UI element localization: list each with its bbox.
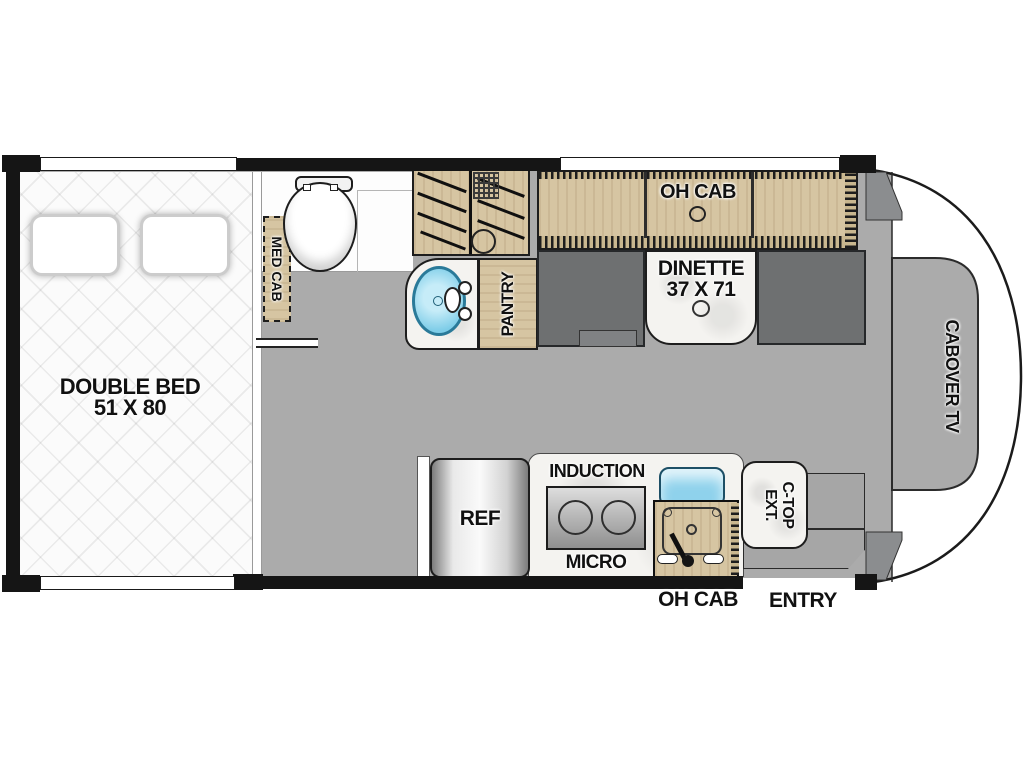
oh-cab-knob	[689, 206, 706, 222]
double-bed-label: DOUBLE BED 51 X 80	[40, 376, 220, 418]
window-bed-top	[40, 157, 237, 171]
med-cab-label: MED CAB	[264, 216, 290, 322]
toilet-hinge-left	[303, 184, 311, 191]
dinette-bench-left-step	[579, 330, 637, 347]
kitchen-basin-drain	[686, 524, 697, 535]
oh-cab-top-label: OH CAB	[645, 181, 751, 204]
ref-divider	[417, 456, 430, 578]
cab-pillar-top	[866, 172, 902, 220]
dinette-label: DINETTE 37 X 71	[647, 258, 755, 300]
ctop-label-line1: C-TOP	[779, 482, 796, 529]
pantry-label: PANTRY	[498, 258, 518, 350]
wardrobe-vent	[473, 172, 499, 199]
bathroom-line-h	[357, 190, 413, 191]
bath-faucet-knob-top	[458, 281, 472, 295]
bath-sink-drain	[433, 296, 443, 306]
water-heater	[471, 229, 496, 254]
cabover-tv-label: CABOVER TV	[940, 296, 964, 456]
kitchen-pill-right	[703, 554, 724, 564]
ctop-label-line2: EXT.	[762, 489, 779, 521]
wall-top-mid	[237, 158, 560, 171]
wall-bottom-block	[233, 574, 263, 590]
double-bed-label-line2: 51 X 80	[94, 395, 166, 420]
dinette-bench-right	[757, 250, 866, 345]
wall-top-corner-left	[2, 155, 40, 172]
cab-floor-tongue	[892, 258, 978, 490]
ref-label: REF	[430, 507, 530, 531]
entry-label: ENTRY	[745, 589, 861, 613]
rv-floor-plan: CABOVER TV DOUBLE BED 51 X 80 MED CAB PA…	[0, 0, 1024, 768]
toilet-hinge-right	[330, 184, 338, 191]
window-bed-bottom	[40, 576, 235, 590]
cab-pillar-bottom	[866, 532, 902, 580]
kitchen-hinge-left	[663, 508, 672, 517]
kitchen-hinge-right	[712, 508, 721, 517]
burner-left	[558, 500, 593, 535]
window-dinette-top	[560, 157, 840, 171]
induction-label: INDUCTION	[532, 461, 662, 482]
oh-cab-track-top	[539, 172, 856, 179]
dinette-label-line1: DINETTE	[658, 257, 744, 280]
kitchen-pill-left	[657, 554, 678, 564]
kitchen-cab-edge	[731, 503, 739, 575]
bath-faucet-knob-bottom	[458, 307, 472, 321]
burner-right	[601, 500, 636, 535]
wall-bottom-corner-left	[2, 575, 40, 592]
oh-cab-edge-right	[845, 172, 856, 248]
pillow-right	[140, 214, 230, 276]
wall-left	[6, 158, 20, 590]
wall-entry-stub	[855, 574, 877, 590]
bed-partition-wall	[252, 172, 262, 576]
oh-cab-track-bottom	[539, 236, 856, 248]
dinette-label-line2: 37 X 71	[667, 278, 736, 301]
bathroom-line-v	[357, 190, 358, 272]
dinette-table-leg	[692, 300, 710, 317]
wall-top-corner-right	[840, 155, 876, 173]
bathroom-wall-stub	[256, 338, 318, 348]
kitchen-faucet-base	[682, 555, 694, 567]
oh-cab-bottom-label: OH CAB	[645, 588, 751, 612]
ctop-label: C-TOP EXT.	[752, 461, 796, 549]
pillow-left	[30, 214, 120, 276]
oh-cab-divider-2	[751, 172, 754, 238]
micro-label: MICRO	[546, 552, 646, 574]
